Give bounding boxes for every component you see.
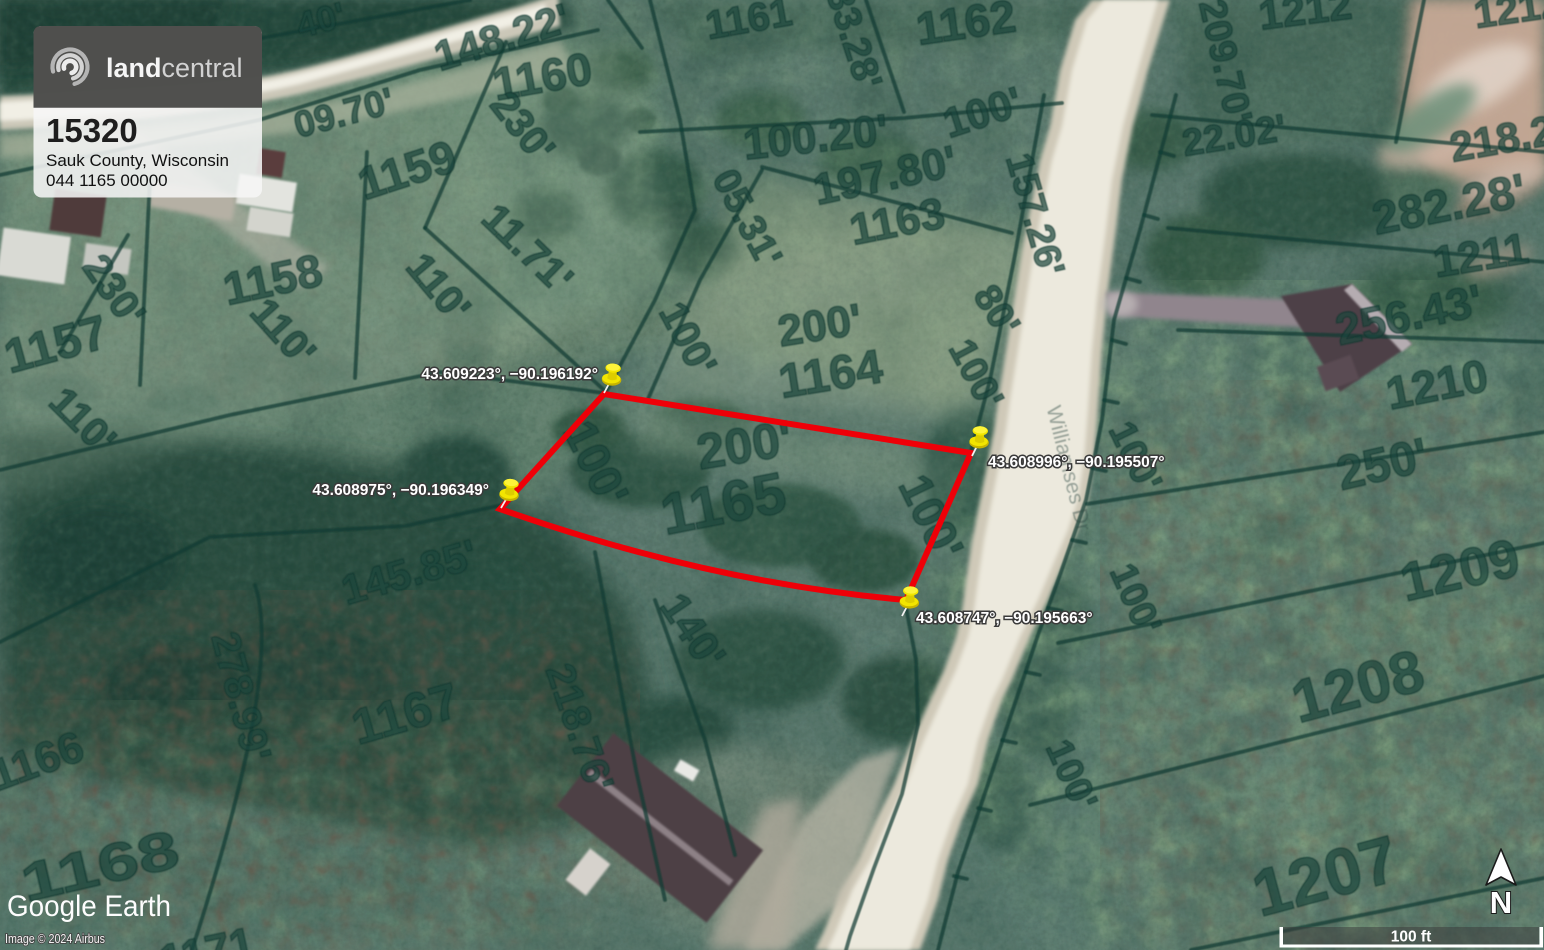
svg-text:43.608996°, −90.195507°: 43.608996°, −90.195507° bbox=[988, 454, 1165, 471]
svg-text:Google Earth: Google Earth bbox=[7, 890, 171, 923]
svg-text:100 ft: 100 ft bbox=[1391, 929, 1432, 946]
svg-text:Sauk County, Wisconsin: Sauk County, Wisconsin bbox=[46, 151, 229, 170]
svg-text:044 1165 00000: 044 1165 00000 bbox=[46, 171, 168, 190]
svg-text:43.609223°, −90.196192°: 43.609223°, −90.196192° bbox=[421, 366, 598, 383]
svg-text:43.608747°, −90.195663°: 43.608747°, −90.195663° bbox=[916, 610, 1093, 627]
svg-text:landcentral: landcentral bbox=[106, 53, 243, 83]
svg-text:15320: 15320 bbox=[46, 112, 138, 149]
svg-text:43.608975°, −90.196349°: 43.608975°, −90.196349° bbox=[312, 482, 489, 499]
svg-text:Image © 2024 Airbus: Image © 2024 Airbus bbox=[5, 932, 105, 946]
svg-text:N: N bbox=[1490, 885, 1512, 920]
